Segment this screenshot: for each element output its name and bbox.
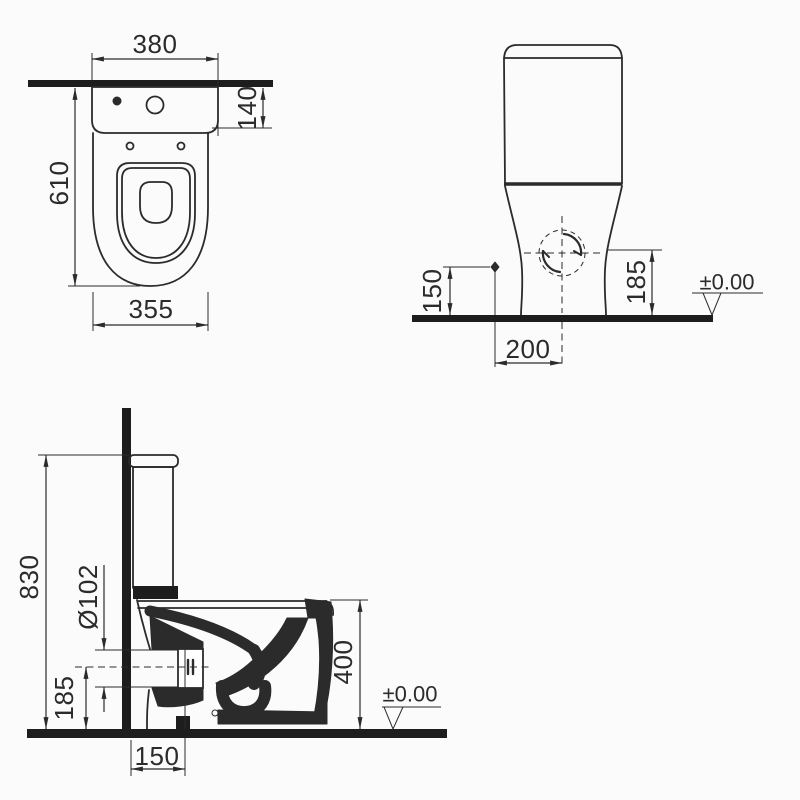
dim-label-150-side: 150: [135, 741, 180, 771]
dim-label-outlet-diameter: Ø102: [73, 564, 103, 630]
dim-label-830: 830: [14, 555, 44, 600]
toilet-dimensional-drawing: 380 140 610 355: [0, 0, 800, 800]
fixing-hole-circle: [212, 710, 218, 716]
pedestal-left-edge: [505, 186, 522, 315]
bowl-water-area: [140, 182, 172, 223]
seat-ring-outer: [117, 163, 195, 263]
floor-datum-side: ±0.00: [382, 682, 441, 730]
view-top-plan: 380 140 610 355: [28, 29, 273, 331]
seat-hinge-hole-left: [127, 143, 134, 150]
outlet-spigot: [178, 649, 203, 688]
inlet-hole-dot: [113, 97, 121, 105]
dimension-outlet-wall-distance: 150: [131, 738, 185, 776]
view-side-section: 830 Ø102 185 150 400: [14, 408, 447, 776]
dim-label-185-front: 185: [621, 260, 651, 305]
cistern-lid-side: [129, 455, 178, 467]
dimension-rim-height: 400: [328, 600, 368, 729]
dimension-supply-height: 150: [417, 267, 450, 315]
technical-drawing-page: 380 140 610 355: [0, 0, 800, 800]
dimension-connection-offset: 200: [495, 334, 562, 364]
cistern-outline-plan: [92, 87, 218, 133]
dimension-bowl-width: 355: [93, 292, 208, 331]
datum-label-side: ±0.00: [383, 682, 438, 707]
datum-triangle-icon: [384, 707, 403, 729]
dim-label-200: 200: [506, 334, 551, 364]
dim-label-610: 610: [44, 161, 74, 206]
dimension-tank-depth: 140: [212, 86, 272, 131]
cistern-body-side: [133, 467, 173, 588]
outlet-lower-section: [152, 688, 203, 707]
floor-fixing-block: [176, 716, 190, 729]
datum-label-front: ±0.00: [700, 270, 755, 295]
floor-bar-side-view: [27, 729, 447, 738]
dim-label-140: 140: [232, 86, 262, 131]
rim-front-section: [305, 599, 332, 618]
dim-label-355: 355: [129, 294, 174, 324]
bowl-back-profile-lower: [147, 690, 149, 729]
dimension-outlet-axis-height: 185: [49, 667, 86, 729]
dim-label-400: 400: [328, 640, 358, 685]
supply-point-marker: [491, 262, 499, 272]
dim-label-150-front: 150: [417, 269, 447, 314]
flush-button-circle: [147, 97, 164, 114]
dim-label-380: 380: [133, 29, 178, 59]
view-front: 150 200 185 ±0.00: [412, 45, 763, 367]
dim-label-185-side: 185: [49, 676, 79, 721]
cistern-section-band: [133, 586, 178, 599]
floor-bar-front-view: [412, 315, 713, 322]
seat-hinge-hole-right: [178, 143, 185, 150]
datum-triangle-icon: [703, 293, 721, 315]
cistern-outline-front: [504, 45, 622, 184]
floor-datum-front: ±0.00: [692, 270, 763, 316]
dimension-connection-height-front: 185: [607, 250, 662, 315]
trap-weir-section: [254, 650, 260, 684]
